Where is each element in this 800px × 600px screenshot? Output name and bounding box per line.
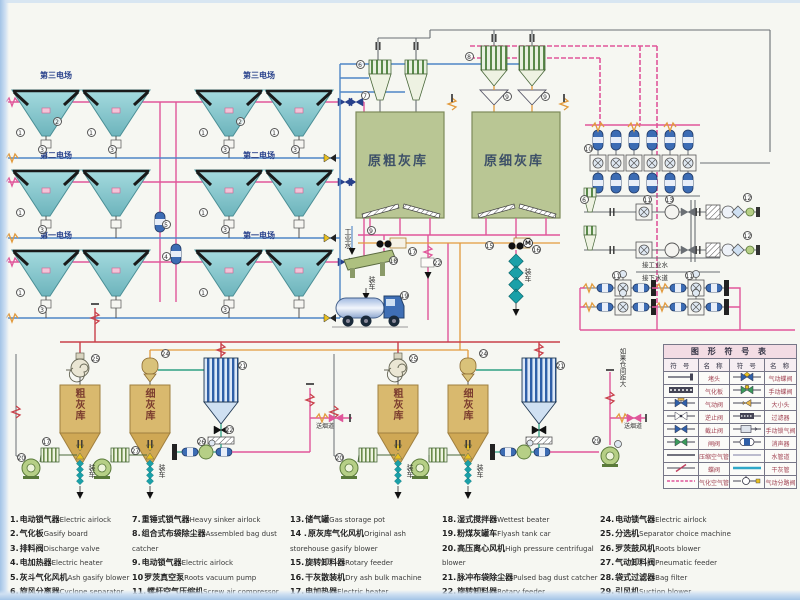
- legend-item-name-en: Rotary feeder: [345, 559, 393, 567]
- legend-item-name-en: Electric heater: [52, 559, 103, 567]
- connect-industrial-water-label: 接工业水: [642, 259, 668, 269]
- symbol-table-row: 气化空气管气动分路阀: [664, 476, 797, 489]
- raw-fine-silo-label: 原细灰库: [484, 150, 544, 169]
- symbol-name: 蝶阀: [698, 463, 730, 476]
- raw-coarse-silo-label: 原粗灰库: [368, 150, 428, 169]
- legend-item: 7.重锤式锁气器Heavy sinker airlock: [132, 513, 290, 527]
- callout-number: 2: [236, 117, 245, 126]
- callout-number: 9: [367, 226, 376, 235]
- butterfly-symbol: [664, 463, 699, 476]
- legend-item-name-zh: 袋式过滤器: [615, 573, 655, 582]
- callout-number: 12: [743, 231, 752, 240]
- symbol-name: 手动蝶阀: [765, 385, 797, 398]
- silencer-symbol: [730, 437, 765, 450]
- callout-number: 3: [221, 145, 230, 154]
- legend-column: 13.储气罐Gas storage pot14 .原灰库气化风机Original…: [290, 513, 442, 600]
- symbol-name: 大小头: [765, 398, 797, 411]
- legend-item: 8.组合式布袋除尘器Assembled bag dust catcher: [132, 527, 290, 556]
- legend-item-name-zh: 旋转卸料器: [305, 558, 345, 567]
- load-truck-label: 装车: [524, 268, 532, 282]
- legend-item: 2.气化板Gasify board: [10, 527, 132, 541]
- process-flow-diagram: [0, 0, 800, 600]
- callout-number: 1: [16, 288, 25, 297]
- callout-number: 7: [361, 91, 370, 100]
- legend-item: 10罗茨真空泵Roots vacuum pump: [132, 571, 290, 585]
- symbol-table-title: 图 形 符 号 表: [664, 345, 797, 359]
- callout-number: 29: [592, 436, 601, 445]
- reducer-symbol: [730, 398, 765, 411]
- legend-item-name-en: Discharge valve: [44, 545, 100, 553]
- callout-number: 24: [479, 349, 488, 358]
- water-pipe-symbol: [730, 450, 765, 463]
- load-truck-label: 装车: [158, 464, 166, 478]
- callout-number: 6: [580, 195, 589, 204]
- symbol-name: 气化板: [698, 385, 730, 398]
- legend-item-name-zh: 排料阀: [20, 544, 44, 553]
- legend-item-name-zh: 罗茨真空泵: [144, 573, 184, 582]
- callout-number: 20: [335, 453, 344, 462]
- symbol-name: 气动阀: [698, 398, 730, 411]
- symbol-name: 手动锁气阀: [765, 424, 797, 437]
- equipment-legend-list: 1.电动锁气器Electric airlock2.气化板Gasify board…: [10, 513, 796, 600]
- callout-number: 3: [221, 305, 230, 314]
- industrial-water-label: 工业水: [344, 228, 352, 249]
- legend-item-number: 21.: [442, 573, 456, 582]
- legend-item-name-en: Roots blower: [655, 545, 700, 553]
- symbol-table-header-row: 符 号 名 称 符 号 名 称: [664, 359, 797, 372]
- callout-number: 17: [408, 247, 417, 256]
- page-edge-left: [0, 0, 9, 600]
- callout-number: 21: [238, 361, 247, 370]
- legend-item: 4.电加热器Electric heater: [10, 556, 132, 570]
- coarse-silo-label: 粗灰库: [74, 388, 82, 421]
- to-flue-label: 送烟道: [624, 421, 642, 430]
- fine-silo-label: 细灰库: [144, 388, 152, 421]
- legend-item-name-en: Ash gasify blower: [68, 574, 130, 582]
- gate-valve-symbol: [664, 437, 699, 450]
- legend-item: 20.高压离心风机High pressure centrifugal blowe…: [442, 542, 600, 571]
- legend-column: 1.电动锁气器Electric airlock2.气化板Gasify board…: [10, 513, 132, 600]
- legend-item-number: 24.: [600, 515, 614, 524]
- legend-item-number: 18.: [442, 515, 456, 524]
- ash-pipe-symbol: [730, 463, 765, 476]
- callout-number: 6: [356, 60, 365, 69]
- callout-number: 25: [91, 354, 100, 363]
- callout-number: 1: [199, 128, 208, 137]
- plug-symbol: [664, 372, 699, 385]
- callout-number: 13: [665, 195, 674, 204]
- legend-item-number: 26.: [600, 544, 614, 553]
- legend-item-name-en: Dry ash bulk machine: [345, 574, 421, 582]
- load-truck-label: 装车: [476, 464, 484, 478]
- symbol-name: 堵头: [698, 372, 730, 385]
- compressor-dryer-station: [580, 188, 795, 330]
- legend-item-name-zh: 湿式搅拌器: [457, 515, 497, 524]
- air-pipe-symbol: [664, 450, 699, 463]
- flow-diagram-page: 第三电场 第二电场 第一电场 第三电场 第二电场 第一电场 原粗灰库 原细灰库 …: [0, 0, 800, 600]
- symbol-table-row: 气化板手动蝶阀: [664, 385, 797, 398]
- vacuum-pump-station: [585, 123, 700, 196]
- callout-number: 1: [199, 288, 208, 297]
- legend-item: 21.脉冲布袋除尘器Pulsed bag dust catcher: [442, 571, 600, 585]
- legend-item-name-zh: 电动锁气器: [615, 515, 655, 524]
- legend-item-number: 28.: [600, 573, 614, 582]
- symbol-name: 消声器: [765, 437, 797, 450]
- bag-dust-unit: [519, 46, 545, 86]
- symbol-name: 气化空气管: [698, 476, 730, 489]
- legend-item-name-en: Separator choice machine: [639, 530, 731, 538]
- legend-item: 13.储气罐Gas storage pot: [290, 513, 442, 527]
- to-flue-label: 送烟道: [316, 421, 334, 430]
- legend-column: 24.电动锁气器Electric airlock25.分选机Separator …: [600, 513, 780, 600]
- callout-number: 21: [556, 361, 565, 370]
- legend-item: 14 .原灰库气化风机Original ash storehouse gasif…: [290, 527, 442, 556]
- legend-item-name-en: Electric airlock: [182, 559, 233, 567]
- callout-number: 3: [291, 145, 300, 154]
- esp-field-label: 第二电场: [243, 150, 275, 161]
- legend-item-name-zh: 高压离心风机: [457, 544, 505, 553]
- callout-number: 10: [584, 144, 593, 153]
- legend-item-number: 14 .: [290, 529, 307, 538]
- filter-symbol: [730, 411, 765, 424]
- symbol-name: 逆止阀: [698, 411, 730, 424]
- callout-number: 1: [16, 208, 25, 217]
- esp-field-label: 第三电场: [243, 70, 275, 81]
- page-edge-bottom: [0, 590, 800, 600]
- callout-number: 1: [16, 128, 25, 137]
- callout-number: 19: [400, 291, 409, 300]
- callout-number: 26: [197, 437, 206, 446]
- esp-field-label: 第三电场: [40, 70, 72, 81]
- suction-blower: [601, 447, 619, 467]
- legend-item-name-zh: 脉冲布袋除尘器: [457, 573, 513, 582]
- connect-sewer-label: 接下水道: [642, 272, 668, 282]
- symbol-name: 气动蝶阀: [765, 372, 797, 385]
- callout-number: 1: [270, 128, 279, 137]
- legend-item-number: 15.: [290, 558, 304, 567]
- callout-number: 25: [409, 354, 418, 363]
- callout-number: 27: [131, 446, 140, 455]
- legend-item: 27.气动卸料阀Pneumatic feeder: [600, 556, 780, 570]
- legend-item-name-zh: 罗茨鼓风机: [615, 544, 655, 553]
- legend-item-number: 27.: [600, 558, 614, 567]
- legend-column: 18.湿式搅拌器Wettest beater19.粉煤灰罐车Flyash tan…: [442, 513, 600, 600]
- flyash-tank-truck: [332, 296, 408, 327]
- callout-number: 11: [685, 271, 694, 280]
- callout-number: 11: [612, 271, 621, 280]
- legend-item-number: 1.: [10, 515, 19, 524]
- symbol-name: 气动分路阀: [765, 476, 797, 489]
- esp-field-label: 第一电场: [243, 230, 275, 241]
- legend-item: 15.旋转卸料器Rotary feeder: [290, 556, 442, 570]
- if-spacing-note: 如果仓间距大: [618, 348, 626, 387]
- legend-item-number: 2.: [10, 529, 19, 538]
- symbol-table-body: 堵头气动蝶阀气化板手动蝶阀气动阀大小头逆止阀过滤器截止阀手动锁气阀闸阀消声器压缩…: [664, 372, 797, 489]
- manual-butterfly-symbol: [730, 385, 765, 398]
- bag-dust-unit: [481, 46, 507, 86]
- callout-number: 1: [199, 208, 208, 217]
- legend-item-number: 5.: [10, 573, 19, 582]
- legend-item-number: 8.: [132, 529, 141, 538]
- graphic-symbol-table: 图 形 符 号 表 符 号 名 称 符 号 名 称 堵头气动蝶阀气化板手动蝶阀气…: [663, 344, 797, 489]
- legend-item: 24.电动锁气器Electric airlock: [600, 513, 780, 527]
- callout-number: 11: [643, 195, 652, 204]
- callout-number: 3: [38, 305, 47, 314]
- legend-item: 3.排料阀Discharge valve: [10, 542, 132, 556]
- bottom-silo-groups: [12, 304, 646, 499]
- symbol-table-header: 符 号: [730, 359, 765, 372]
- legend-item-name-zh: 储气罐: [305, 515, 329, 524]
- legend-item-number: 13.: [290, 515, 304, 524]
- gasify-board-symbol: [664, 385, 699, 398]
- coarse-silo-label: 粗灰库: [392, 388, 400, 421]
- load-truck-label: 装车: [88, 464, 96, 478]
- legend-item: 19.粉煤灰罐车Flyash tank car: [442, 527, 600, 541]
- legend-item-name-zh: 组合式布袋除尘器: [142, 529, 206, 538]
- callout-number: 16: [532, 245, 541, 254]
- legend-item-number: 10: [132, 573, 143, 582]
- legend-item-name-en: Roots vacuum pump: [184, 574, 256, 582]
- legend-item-name-zh: 气动卸料阀: [615, 558, 655, 567]
- legend-item-number: 3.: [10, 544, 19, 553]
- symbol-table-header: 名 称: [765, 359, 797, 372]
- callout-number: 9: [541, 92, 550, 101]
- callout-number: 5: [162, 220, 171, 229]
- callout-number: 18: [389, 256, 398, 265]
- callout-number: 22: [433, 258, 442, 267]
- legend-item-name-en: Pneumatic feeder: [655, 559, 717, 567]
- legend-item-name-zh: 灰斗气化风机: [20, 573, 68, 582]
- symbol-name: 截止阀: [698, 424, 730, 437]
- symbol-table-header: 符 号: [664, 359, 699, 372]
- legend-item-number: 9.: [132, 558, 141, 567]
- symbol-table-row: 截止阀手动锁气阀: [664, 424, 797, 437]
- legend-item: 5.灰斗气化风机Ash gasify blower: [10, 571, 132, 585]
- callout-number: 3: [38, 225, 47, 234]
- legend-item-name-en: Gas storage pot: [329, 516, 385, 524]
- callout-number: 2: [53, 117, 62, 126]
- cyclone-separator: [369, 60, 391, 100]
- symbol-name: 过滤器: [765, 411, 797, 424]
- callout-number: 3: [38, 145, 47, 154]
- legend-item: 25.分选机Separator choice machine: [600, 527, 780, 541]
- legend-item-name-zh: 电动锁气器: [142, 558, 182, 567]
- callout-number: 24: [161, 349, 170, 358]
- symbol-table-row: 蝶阀干灰管: [664, 463, 797, 476]
- legend-item-name-zh: 粉煤灰罐车: [457, 529, 497, 538]
- symbol-table-row: 闸阀消声器: [664, 437, 797, 450]
- legend-item-name-zh: 分选机: [615, 529, 639, 538]
- symbol-name: 压缩空气管: [698, 450, 730, 463]
- callout-number: 3: [221, 225, 230, 234]
- legend-item: 9.电动锁气器Electric airlock: [132, 556, 290, 570]
- pneu-butterfly-symbol: [730, 372, 765, 385]
- callout-number: 9: [503, 92, 512, 101]
- legend-item-number: 16.: [290, 573, 304, 582]
- symbol-name: 水管道: [765, 450, 797, 463]
- legend-item: 26.罗茨鼓风机Roots blower: [600, 542, 780, 556]
- legend-item-number: 25.: [600, 529, 614, 538]
- cyclone-separator: [405, 60, 427, 100]
- check-valve-symbol: [664, 411, 699, 424]
- symbol-name: 干灰管: [765, 463, 797, 476]
- bulk-loader-chute: [509, 254, 523, 304]
- gasify-pipe-symbol: [664, 476, 699, 489]
- legend-item-name-en: Wettest beater: [497, 516, 549, 524]
- legend-item-name-zh: 原灰库气化风机: [308, 529, 364, 538]
- pneu-valve-symbol: [664, 398, 699, 411]
- legend-item: 18.湿式搅拌器Wettest beater: [442, 513, 600, 527]
- manual-airlock-symbol: [730, 424, 765, 437]
- legend-item-name-zh: 重锤式锁气器: [142, 515, 190, 524]
- callout-number: 20: [17, 453, 26, 462]
- symbol-table-header: 名 称: [698, 359, 730, 372]
- callout-number: 17: [42, 437, 51, 446]
- legend-column: 7.重锤式锁气器Heavy sinker airlock8.组合式布袋除尘器As…: [132, 513, 290, 600]
- legend-item-number: 19.: [442, 529, 456, 538]
- load-truck-label: 装车: [406, 464, 414, 478]
- legend-item-name-en: Flyash tank car: [497, 530, 550, 538]
- stop-valve-symbol: [664, 424, 699, 437]
- diverter-symbol: [730, 476, 765, 489]
- callout-number: 3: [108, 145, 117, 154]
- legend-item-name-zh: 电加热器: [20, 558, 52, 567]
- fine-silo-label: 细灰库: [462, 388, 470, 421]
- motor-marker: M: [523, 238, 533, 248]
- legend-item: 1.电动锁气器Electric airlock: [10, 513, 132, 527]
- callout-number: 1: [87, 128, 96, 137]
- legend-item: 16.干灰散装机Dry ash bulk machine: [290, 571, 442, 585]
- callout-number: 15: [485, 241, 494, 250]
- callout-number: 8: [465, 52, 474, 61]
- symbol-table-row: 堵头气动蝶阀: [664, 372, 797, 385]
- legend-item-name-en: Electric airlock: [60, 516, 111, 524]
- legend-item-name-en: Electric airlock: [655, 516, 706, 524]
- legend-item-number: 7.: [132, 515, 141, 524]
- legend-item-name-zh: 干灰散装机: [305, 573, 345, 582]
- legend-item-name-en: Gasify board: [44, 530, 88, 538]
- legend-item-number: 4.: [10, 558, 19, 567]
- legend-item-name-en: Bag filter: [655, 574, 687, 582]
- legend-item-name-zh: 气化板: [20, 529, 44, 538]
- legend-item-name-en: Pulsed bag dust catcher: [513, 574, 597, 582]
- symbol-table-row: 气动阀大小头: [664, 398, 797, 411]
- callout-number: 22: [225, 425, 234, 434]
- legend-item-name-en: Heavy sinker airlock: [190, 516, 261, 524]
- symbol-table-row: 压缩空气管水管道: [664, 450, 797, 463]
- symbol-name: 闸阀: [698, 437, 730, 450]
- legend-item-number: 20.: [442, 544, 456, 553]
- callout-number: 4: [162, 252, 171, 261]
- legend-item-name-zh: 电动锁气器: [20, 515, 60, 524]
- symbol-table-row: 逆止阀过滤器: [664, 411, 797, 424]
- legend-item: 28.袋式过滤器Bag filter: [600, 571, 780, 585]
- callout-number: 12: [743, 193, 752, 202]
- load-truck-label: 装车: [368, 276, 376, 290]
